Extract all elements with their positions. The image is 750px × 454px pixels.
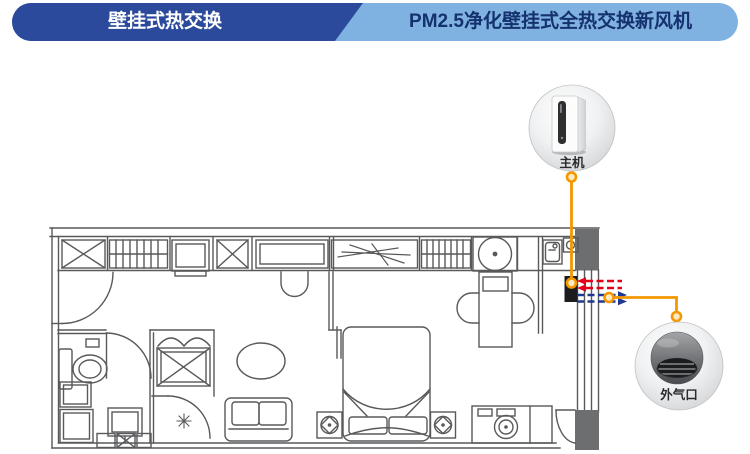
round-table — [237, 343, 285, 379]
bedside-lamp-right — [431, 412, 456, 438]
side-table — [97, 408, 151, 448]
balcony-door — [556, 410, 575, 443]
dome-vent-icon — [651, 332, 703, 384]
outdoor-vent-callout: 外气口 — [635, 322, 723, 410]
inner-door — [152, 396, 210, 438]
floor-plan-diagram: 主机 外气口 — [0, 0, 750, 454]
entry-door — [52, 273, 113, 324]
dining-table — [281, 272, 534, 347]
catalog-diagram-page: { "header": { "left_tab": { "label": "壁挂… — [0, 0, 750, 454]
closet — [157, 338, 210, 386]
interior-walls — [329, 272, 341, 358]
supply-air-arrows — [577, 277, 622, 292]
sofa — [225, 398, 292, 441]
bed — [343, 327, 430, 441]
outdoor-vent-label: 外气口 — [659, 387, 698, 402]
fresh-air-unit-icon — [552, 96, 586, 155]
main-unit-label: 主机 — [559, 155, 585, 170]
floor-plan — [50, 228, 599, 450]
kitchen-bottom-unit — [472, 406, 552, 443]
bedside-lamp-left — [317, 412, 342, 438]
main-unit-callout: 主机 — [529, 85, 615, 171]
top-counter-row — [58, 237, 578, 333]
